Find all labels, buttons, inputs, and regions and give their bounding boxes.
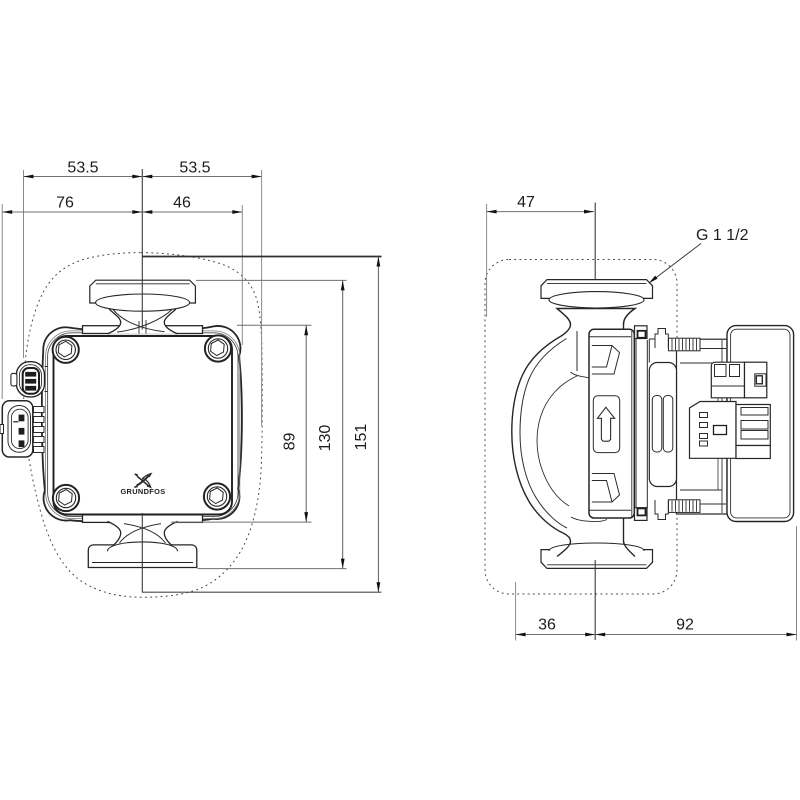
svg-text:47: 47 — [517, 194, 535, 211]
svg-text:92: 92 — [676, 617, 694, 634]
svg-text:151: 151 — [353, 424, 370, 451]
svg-text:G 1 1/2: G 1 1/2 — [696, 227, 749, 244]
svg-text:89: 89 — [282, 433, 299, 451]
svg-text:46: 46 — [173, 195, 191, 212]
svg-text:GRUNDFOS: GRUNDFOS — [120, 487, 165, 496]
svg-text:53.5: 53.5 — [179, 160, 210, 177]
svg-text:36: 36 — [538, 617, 556, 634]
svg-text:76: 76 — [56, 195, 74, 212]
svg-text:130: 130 — [317, 425, 334, 452]
svg-text:53.5: 53.5 — [67, 160, 98, 177]
